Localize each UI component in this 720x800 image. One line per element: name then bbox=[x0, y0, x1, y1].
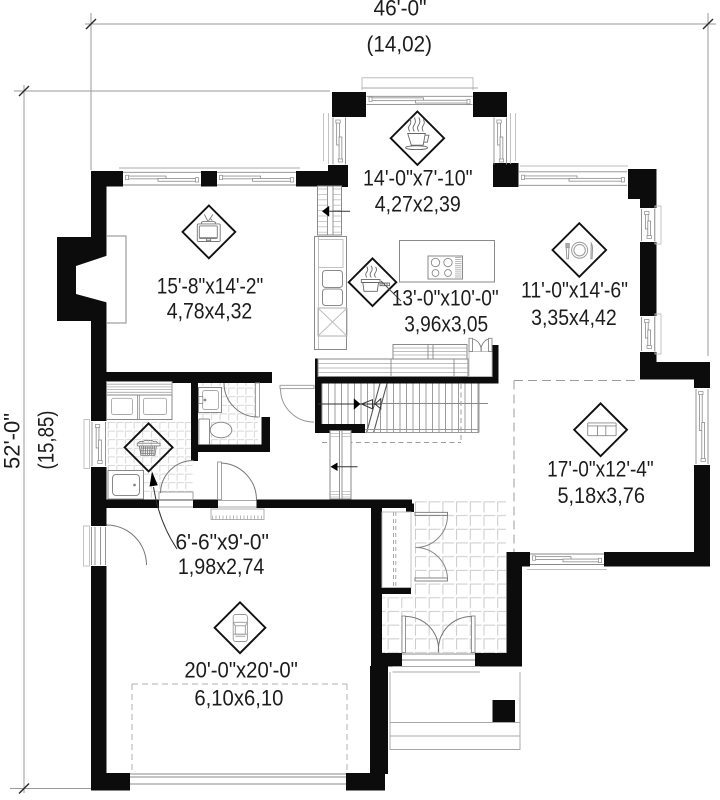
svg-text:15'-8"x14'-2": 15'-8"x14'-2" bbox=[157, 274, 264, 299]
svg-text:3,96x3,05: 3,96x3,05 bbox=[404, 312, 488, 337]
svg-text:4,27x2,39: 4,27x2,39 bbox=[375, 192, 461, 217]
svg-text:20'-0"x20'-0": 20'-0"x20'-0" bbox=[184, 658, 298, 683]
svg-text:13'-0"x10'-0": 13'-0"x10'-0" bbox=[392, 286, 499, 311]
svg-text:(14,02): (14,02) bbox=[367, 32, 433, 57]
svg-text:11'-0"x14'-6": 11'-0"x14'-6" bbox=[521, 278, 628, 303]
svg-text:17'-0"x12'-4": 17'-0"x12'-4" bbox=[547, 457, 654, 482]
svg-text:46'-0": 46'-0" bbox=[374, 0, 427, 21]
svg-text:5,18x3,76: 5,18x3,76 bbox=[557, 483, 645, 508]
svg-text:3,35x4,42: 3,35x4,42 bbox=[531, 305, 617, 330]
svg-text:4,78x4,32: 4,78x4,32 bbox=[167, 299, 253, 324]
svg-text:14'-0"x7'-10": 14'-0"x7'-10" bbox=[363, 166, 473, 191]
svg-text:1,98x2,74: 1,98x2,74 bbox=[178, 554, 265, 579]
svg-text:6'-6"x9'-0": 6'-6"x9'-0" bbox=[175, 530, 269, 555]
svg-text:(15,85): (15,85) bbox=[34, 411, 59, 470]
svg-text:52'-0": 52'-0" bbox=[0, 413, 25, 469]
svg-text:6,10x6,10: 6,10x6,10 bbox=[194, 686, 283, 711]
